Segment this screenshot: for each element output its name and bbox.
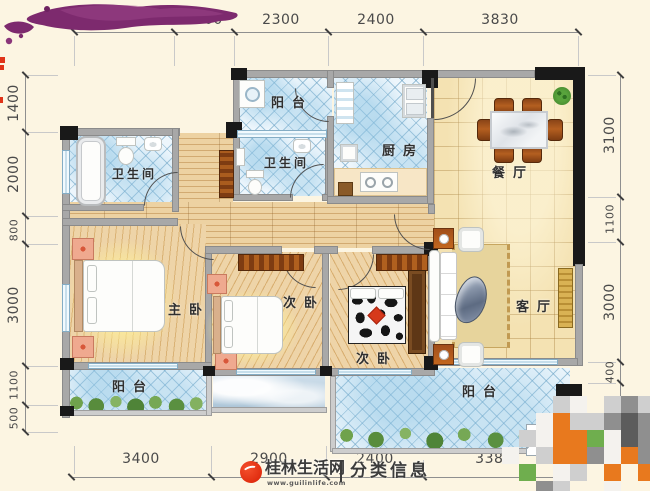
mosaic-cell xyxy=(587,447,604,464)
ext-line xyxy=(588,75,616,76)
watermark-logo-icon xyxy=(240,461,262,483)
wall xyxy=(575,264,583,366)
fridge-door xyxy=(406,88,424,100)
kitchen-cabinet xyxy=(338,182,353,196)
mosaic-cell xyxy=(621,430,638,447)
dim-line xyxy=(25,75,26,432)
watermark-section: 分类信息 xyxy=(350,462,430,479)
side-table xyxy=(433,344,454,365)
wall-column xyxy=(320,366,332,376)
red-edge-mark xyxy=(0,65,4,70)
mosaic-cell xyxy=(570,396,587,413)
ext-line xyxy=(588,242,616,243)
watermark-site-name: 桂林生活网 xyxy=(265,461,345,477)
watermark-url: www.guilinlife.com xyxy=(267,480,346,487)
mosaic-cell xyxy=(638,430,650,447)
dim-label: 1400 xyxy=(7,84,21,122)
nightstand xyxy=(215,352,237,370)
balcony-mid-floor xyxy=(213,375,325,411)
purple-flower-decoration xyxy=(0,0,250,52)
wall-column xyxy=(573,70,585,266)
wall xyxy=(62,218,178,226)
mosaic-cell xyxy=(570,464,587,481)
room-label-bedroom-lower: 次卧 xyxy=(356,352,398,365)
mosaic-cell xyxy=(621,413,638,430)
mosaic-cell xyxy=(621,447,638,464)
dim-line xyxy=(71,477,566,478)
washing-machine xyxy=(239,80,265,108)
room-label-living: 客厅 xyxy=(516,300,558,313)
wall-column xyxy=(231,68,247,80)
room-label-master: 主卧 xyxy=(168,303,210,316)
dim-label: 3830 xyxy=(481,13,519,27)
mosaic-cell xyxy=(587,430,604,447)
armchair xyxy=(458,227,484,252)
mosaic-cell xyxy=(604,481,621,491)
wall-column xyxy=(60,126,78,140)
pillow xyxy=(350,288,376,299)
mosaic-cell xyxy=(570,447,587,464)
wall xyxy=(327,116,334,200)
wardrobe xyxy=(238,254,304,271)
ext-line xyxy=(28,432,58,433)
dim-label: 3000 xyxy=(603,283,617,321)
ext-line xyxy=(28,216,58,217)
watermark-divider xyxy=(340,460,342,482)
pillow xyxy=(224,300,233,322)
floor-plan-scene: 2500 1500 2300 2400 3830 1400 2000 800 3… xyxy=(0,0,650,491)
wall xyxy=(233,194,293,201)
dim-label: 800 xyxy=(9,219,20,242)
red-edge-mark xyxy=(0,57,5,63)
wall-column xyxy=(60,358,74,370)
room-label-balcony-left: 阳台 xyxy=(112,380,154,393)
ext-line xyxy=(28,132,58,133)
wall-column xyxy=(556,384,582,396)
plant xyxy=(553,87,571,105)
mosaic-cell xyxy=(536,430,553,447)
pillow xyxy=(87,265,97,292)
wall xyxy=(327,196,434,204)
bed-headboard xyxy=(213,296,221,354)
mosaic-censor xyxy=(502,396,650,491)
side-table xyxy=(433,228,454,249)
washer-drum xyxy=(245,87,260,102)
bath-shelf xyxy=(236,148,245,166)
tv-cabinet xyxy=(558,268,573,328)
sofa-seats xyxy=(440,252,457,340)
logo-swoosh xyxy=(242,464,259,477)
room-label-bath-mid: 卫生间 xyxy=(264,157,309,169)
armchair xyxy=(458,342,484,367)
mosaic-cell xyxy=(604,464,621,481)
room-label-bath-left: 卫生间 xyxy=(112,168,157,180)
dining-table xyxy=(490,111,548,149)
pillow xyxy=(378,288,404,299)
ext-line xyxy=(578,36,579,66)
ext-line xyxy=(423,36,424,66)
balcony-rail xyxy=(62,410,212,416)
mosaic-cell xyxy=(604,396,621,413)
nightstand xyxy=(207,274,227,294)
dim-label: 2300 xyxy=(262,13,300,27)
bed-headboard xyxy=(74,260,83,332)
ext-line xyxy=(28,75,58,76)
dim-line xyxy=(620,75,621,428)
fridge xyxy=(402,84,426,118)
wall xyxy=(314,246,338,254)
dining-chair xyxy=(547,119,563,141)
mosaic-cell xyxy=(638,413,650,430)
mosaic-cell xyxy=(638,447,650,464)
mosaic-cell xyxy=(587,413,604,430)
desk-cabinet xyxy=(408,270,426,354)
wall xyxy=(428,204,435,214)
room-label-kitchen: 厨房 xyxy=(382,144,424,157)
dim-label: 400 xyxy=(605,361,616,384)
mosaic-cell xyxy=(536,481,553,491)
mosaic-cell xyxy=(536,447,553,464)
side-table-top xyxy=(439,350,449,360)
dim-label: 3400 xyxy=(122,452,160,466)
mosaic-cell xyxy=(536,413,553,430)
dim-label: 1100 xyxy=(605,204,616,234)
mosaic-cell xyxy=(621,396,638,413)
toilet-bowl xyxy=(248,179,262,195)
wall xyxy=(62,204,144,211)
dim-label: 2400 xyxy=(357,13,395,27)
kitchen-sink-unit xyxy=(336,82,354,124)
ext-line xyxy=(211,446,212,474)
wall xyxy=(233,70,535,78)
room-label-bedroom-mid: 次卧 xyxy=(283,296,325,309)
ext-line xyxy=(328,36,329,66)
sofa-back xyxy=(429,250,440,342)
dim-label: 3100 xyxy=(603,116,617,154)
mosaic-cell xyxy=(502,447,519,464)
mosaic-cell xyxy=(638,396,650,413)
dim-label: 1100 xyxy=(9,370,20,400)
ext-line xyxy=(74,446,75,474)
wall xyxy=(62,128,180,136)
balcony-rail xyxy=(211,407,327,413)
burner xyxy=(365,177,376,188)
mosaic-cell xyxy=(604,430,621,447)
dim-label: 2000 xyxy=(7,155,21,193)
wall xyxy=(233,136,240,198)
mosaic-cell xyxy=(638,464,650,481)
window xyxy=(236,369,316,375)
balcony-rail xyxy=(330,376,336,452)
burner xyxy=(382,177,393,188)
mosaic-cell xyxy=(553,481,570,491)
window xyxy=(88,363,178,369)
nightstand xyxy=(72,336,94,358)
sink xyxy=(144,137,162,151)
window xyxy=(62,284,70,332)
window xyxy=(237,130,327,138)
dim-label: 500 xyxy=(9,407,20,430)
mosaic-cell xyxy=(553,430,570,447)
balcony-left-plants xyxy=(68,392,209,412)
toilet-tank xyxy=(116,137,136,146)
mosaic-cell xyxy=(604,413,621,430)
wall xyxy=(205,246,282,254)
dim-label: 3000 xyxy=(7,286,21,324)
ext-line xyxy=(28,244,58,245)
sink xyxy=(293,139,311,153)
red-edge-mark xyxy=(0,97,3,103)
mosaic-cell xyxy=(604,447,621,464)
toilet-bowl xyxy=(118,147,134,165)
side-table-top xyxy=(439,234,449,244)
wall xyxy=(427,118,434,204)
wall xyxy=(327,70,334,88)
mosaic-cell xyxy=(570,430,587,447)
toilet-tank xyxy=(246,170,264,178)
nightstand xyxy=(72,238,94,260)
ext-line xyxy=(588,197,616,198)
pillow xyxy=(224,326,233,348)
room-label-balcony-right: 阳台 xyxy=(462,385,504,398)
mosaic-cell xyxy=(519,464,536,481)
wall-column xyxy=(60,406,74,416)
hall-cabinet xyxy=(219,150,234,198)
mosaic-cell xyxy=(553,413,570,430)
kitchen-board xyxy=(340,144,358,162)
bathtub xyxy=(76,136,106,206)
ext-line xyxy=(28,366,58,367)
window xyxy=(62,150,70,194)
fridge-door xyxy=(406,103,424,115)
wardrobe xyxy=(376,254,428,271)
mosaic-cell xyxy=(519,430,536,447)
ext-line xyxy=(28,405,58,406)
room-label-dining: 餐厅 xyxy=(492,166,534,179)
stove xyxy=(360,172,398,192)
window xyxy=(338,369,412,375)
mosaic-cell xyxy=(553,396,570,413)
mosaic-cell xyxy=(570,413,587,430)
wall-column xyxy=(203,366,215,376)
mosaic-cell xyxy=(553,464,570,481)
room-label-balcony-top: 阳台 xyxy=(271,96,313,109)
mosaic-cell xyxy=(553,447,570,464)
pillow xyxy=(87,297,97,324)
entry-door-leaf xyxy=(431,78,434,118)
